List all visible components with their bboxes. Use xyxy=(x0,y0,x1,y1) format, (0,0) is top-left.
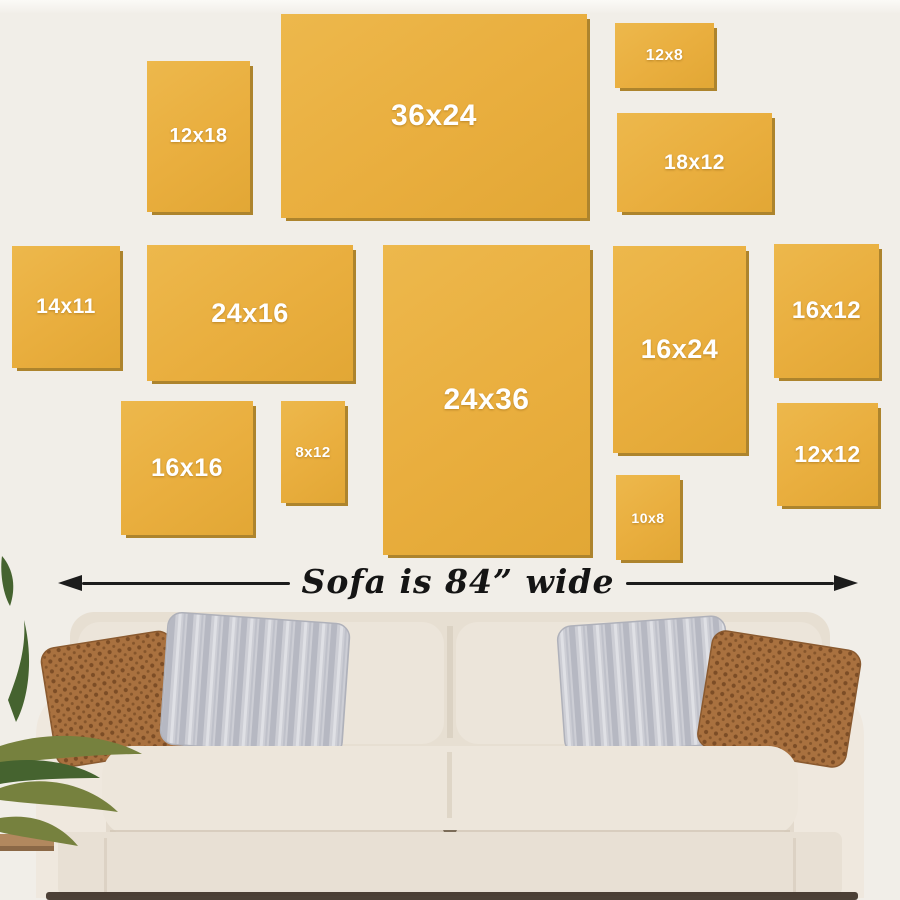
frame-16x16: 16x16 xyxy=(121,401,253,535)
frame-16x24: 16x24 xyxy=(613,246,746,453)
frame-size-label: 36x24 xyxy=(391,99,477,133)
frame-size-grid: 12x1836x2412x818x1214x1124x1624x3616x241… xyxy=(0,0,900,900)
frame-16x12: 16x12 xyxy=(774,244,879,378)
frame-size-label: 10x8 xyxy=(631,510,664,526)
arrowhead-left-icon xyxy=(58,575,82,591)
frame-12x18: 12x18 xyxy=(147,61,250,212)
frame-10x8: 10x8 xyxy=(616,475,680,560)
frame-24x16: 24x16 xyxy=(147,245,353,381)
frame-24x36: 24x36 xyxy=(383,245,590,555)
frame-size-label: 24x16 xyxy=(211,298,289,329)
frame-size-label: 24x36 xyxy=(444,383,530,417)
frame-size-label: 16x24 xyxy=(641,334,719,365)
frame-12x8: 12x8 xyxy=(615,23,714,88)
frame-size-label: 12x12 xyxy=(794,441,860,468)
measure-line-right xyxy=(626,582,834,585)
frame-8x12: 8x12 xyxy=(281,401,345,503)
frame-size-label: 14x11 xyxy=(36,295,96,319)
frame-14x11: 14x11 xyxy=(12,246,120,368)
frame-12x12: 12x12 xyxy=(777,403,878,506)
frame-size-label: 16x12 xyxy=(792,297,861,325)
frame-size-label: 18x12 xyxy=(664,151,725,175)
frame-36x24: 36x24 xyxy=(281,14,587,218)
arrowhead-right-icon xyxy=(834,575,858,591)
size-guide-infographic: 12x1836x2412x818x1214x1124x1624x3616x241… xyxy=(0,0,900,900)
frame-18x12: 18x12 xyxy=(617,113,772,212)
frame-size-label: 12x8 xyxy=(646,47,684,65)
frame-size-label: 8x12 xyxy=(295,444,330,461)
frame-size-label: 12x18 xyxy=(169,125,227,148)
measure-line-left xyxy=(82,582,290,585)
sofa-width-caption: Sofa is 84” wide xyxy=(302,562,615,601)
sofa-width-measure: Sofa is 84” wide xyxy=(58,561,858,605)
frame-size-label: 16x16 xyxy=(151,454,223,483)
